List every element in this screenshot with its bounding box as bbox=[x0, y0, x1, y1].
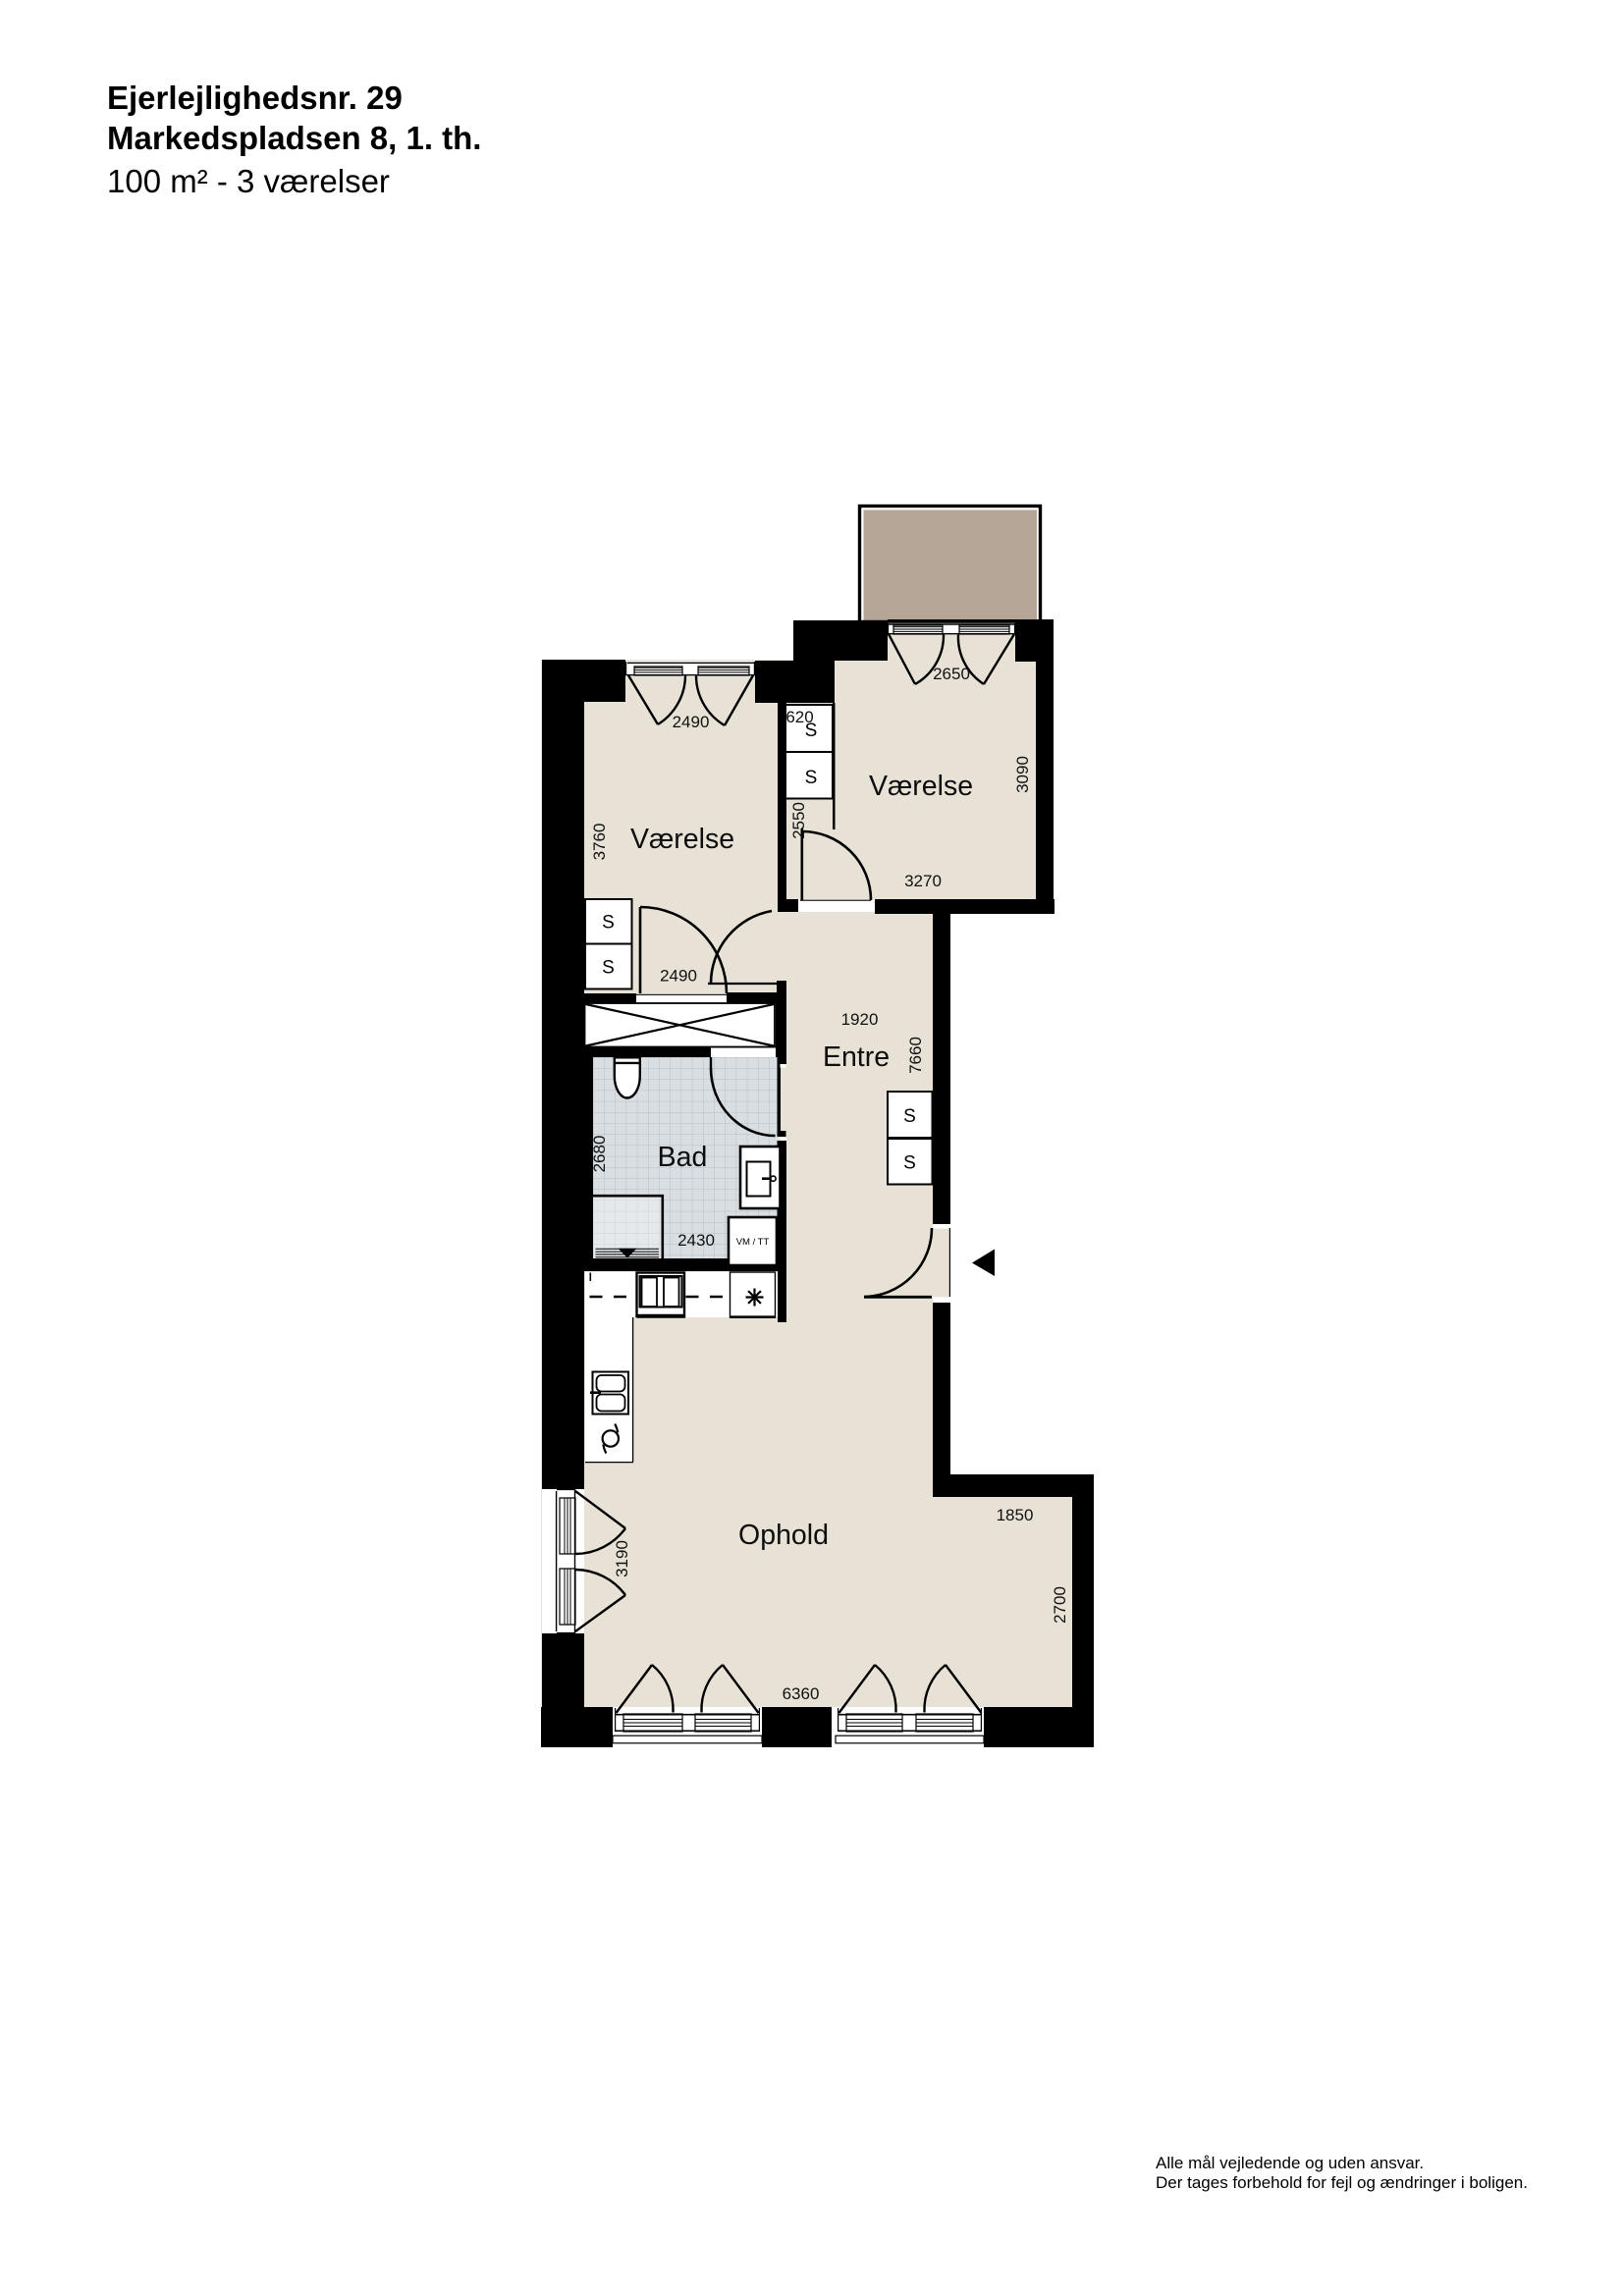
svg-text:2650: 2650 bbox=[933, 665, 970, 683]
svg-text:2700: 2700 bbox=[1051, 1586, 1069, 1624]
svg-text:3760: 3760 bbox=[590, 824, 609, 861]
svg-text:3190: 3190 bbox=[613, 1540, 631, 1577]
svg-text:S: S bbox=[903, 1153, 916, 1174]
svg-text:Værelse: Værelse bbox=[630, 824, 734, 855]
svg-text:VM / TT: VM / TT bbox=[736, 1237, 770, 1248]
svg-text:2680: 2680 bbox=[590, 1136, 609, 1173]
svg-text:1920: 1920 bbox=[841, 1010, 879, 1029]
svg-text:2430: 2430 bbox=[677, 1231, 715, 1250]
svg-text:3090: 3090 bbox=[1013, 756, 1032, 793]
svg-text:S: S bbox=[602, 958, 615, 979]
svg-text:Bad: Bad bbox=[658, 1142, 708, 1173]
svg-text:2490: 2490 bbox=[660, 967, 697, 986]
svg-text:620: 620 bbox=[785, 708, 813, 726]
svg-text:Entre: Entre bbox=[823, 1041, 890, 1073]
svg-text:1850: 1850 bbox=[997, 1506, 1034, 1524]
svg-text:S: S bbox=[602, 913, 615, 934]
svg-text:2550: 2550 bbox=[789, 802, 808, 839]
svg-text:6360: 6360 bbox=[783, 1684, 820, 1703]
svg-text:7660: 7660 bbox=[906, 1037, 925, 1074]
svg-text:3270: 3270 bbox=[904, 872, 942, 890]
svg-text:S: S bbox=[903, 1106, 916, 1127]
svg-text:S: S bbox=[805, 768, 818, 788]
svg-text:Værelse: Værelse bbox=[869, 771, 973, 802]
svg-text:2490: 2490 bbox=[673, 713, 710, 731]
svg-text:Ophold: Ophold bbox=[738, 1520, 829, 1551]
